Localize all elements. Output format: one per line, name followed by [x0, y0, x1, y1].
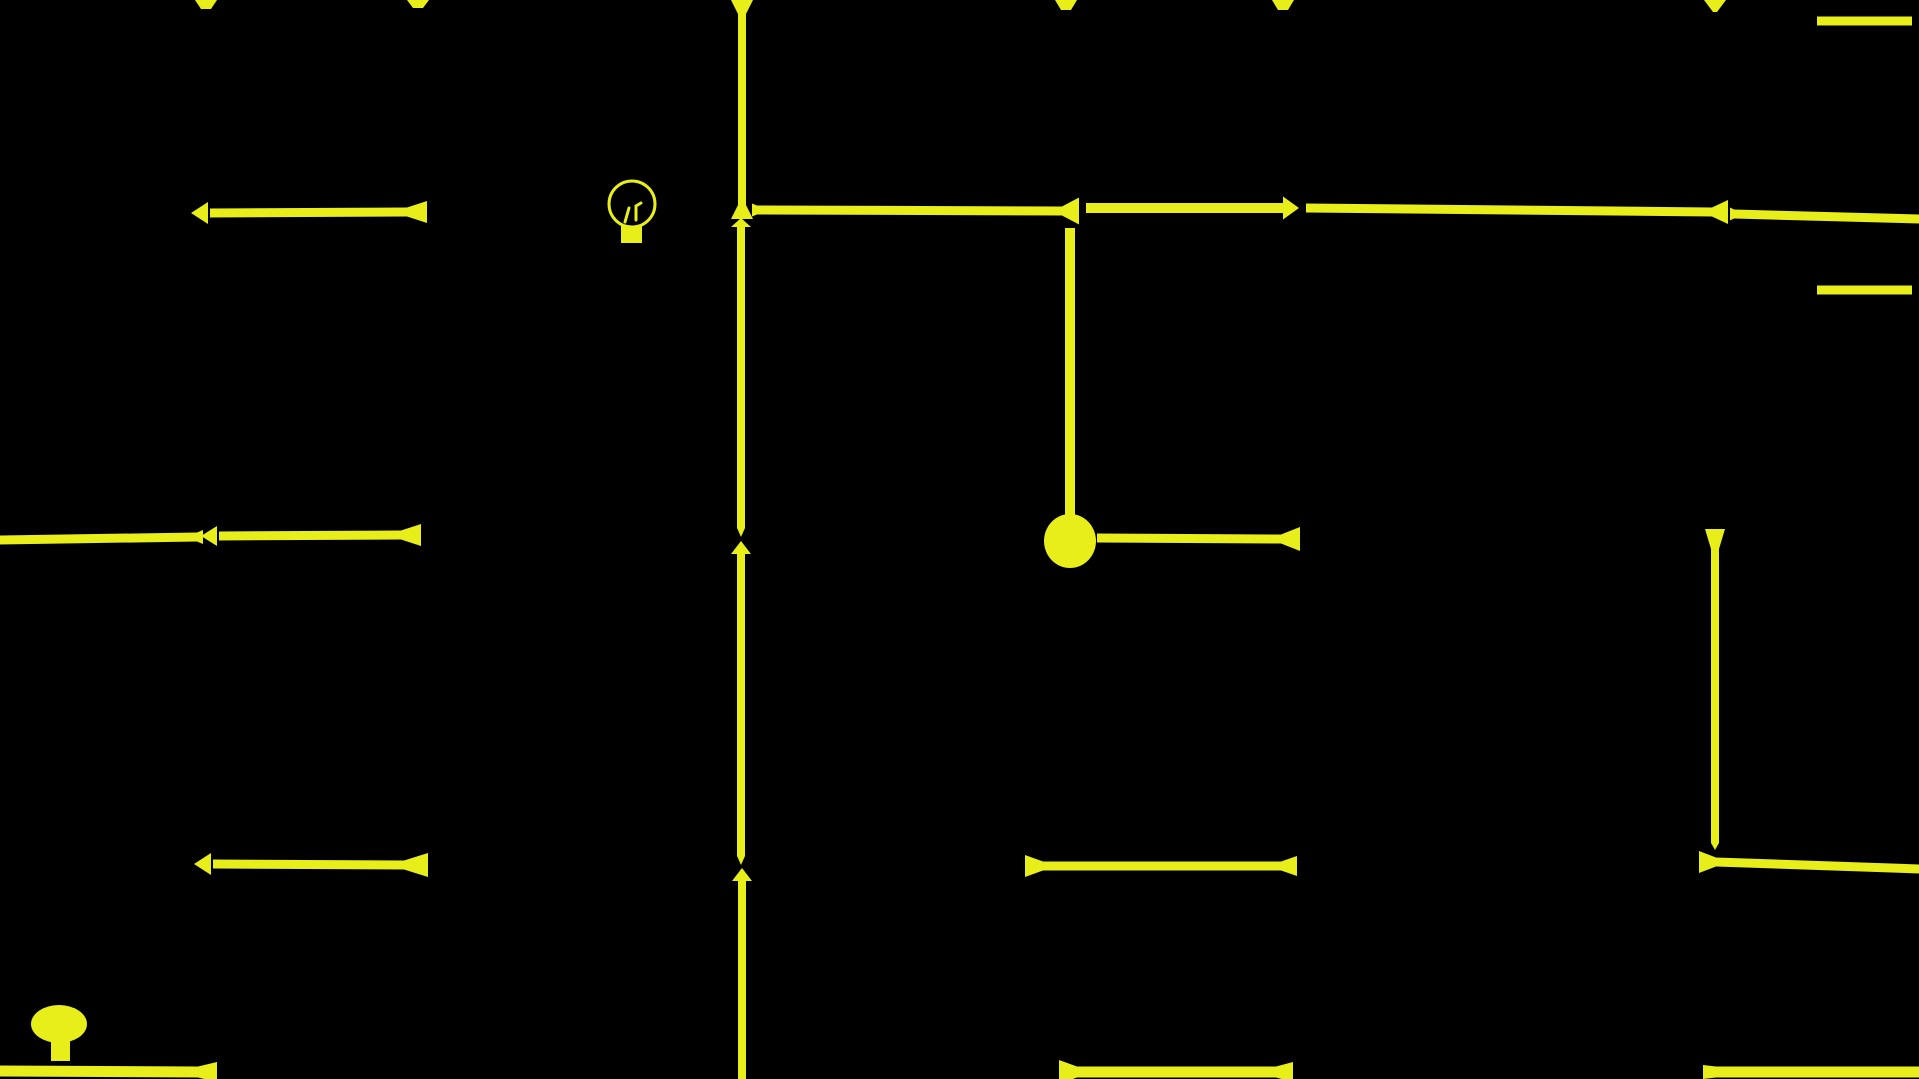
wall-bottom-edge3-flare: [1703, 1065, 1716, 1079]
icons-group: [31, 181, 1096, 1061]
wall-bottom-edge2-flare: [1276, 1062, 1293, 1079]
wall-main-seg1-flare: [752, 204, 757, 217]
wall-right-v-flare: [1705, 529, 1725, 549]
wall-bottom-edge2: [1077, 1067, 1276, 1078]
wall-node-arm-flare: [1281, 527, 1300, 551]
wall-main-seg4-flare: [1730, 208, 1734, 221]
top-stub-4: [1272, 0, 1294, 10]
wall-left-row3-arrow: [194, 853, 211, 875]
wall-botright-row: [1716, 858, 1919, 874]
lightbulb-outline-icon: [609, 181, 655, 243]
wall-center-v3: [737, 554, 745, 856]
wall-topright-bar: [1817, 17, 1912, 26]
top-stub-1: [195, 0, 217, 9]
wall-node-drop: [1065, 228, 1075, 520]
wall-bottom-edge3: [1716, 1067, 1919, 1078]
wall-left-row1-arrow: [191, 202, 208, 224]
wall-center-v2: [737, 227, 745, 528]
lightbulb-outline-icon-filament-0: [625, 208, 629, 222]
wall-center-v4: [738, 881, 746, 1079]
top-stub-3: [1055, 0, 1077, 10]
wall-botmid-row: [1043, 862, 1281, 871]
wall-left-row2b: [219, 531, 401, 541]
wall-main-seg1-flare: [1062, 198, 1079, 225]
wall-left-row2b-arrow: [201, 526, 217, 546]
wall-center-v3-arrow: [731, 541, 751, 554]
top-stub-2: [407, 0, 429, 8]
node-dot: [1044, 514, 1096, 568]
wall-center-v3-taper: [737, 856, 745, 865]
wall-main-seg1: [757, 206, 1062, 216]
wall-left-row3: [213, 860, 404, 870]
wall-left-row1-flare: [407, 201, 427, 223]
wall-left-row2b-flare: [401, 524, 421, 546]
lightbulb-filled-icon: [31, 1005, 87, 1061]
wall-main-seg2-arrow: [1283, 197, 1299, 220]
wall-bottom-edge1: [0, 1066, 198, 1078]
lightbulb-filled-icon-glass: [31, 1005, 87, 1043]
wall-right-v: [1711, 549, 1719, 843]
wall-right-bar: [1817, 286, 1912, 295]
wall-botmid-row-flare: [1281, 856, 1297, 876]
lightbulb-outline-icon-base: [621, 226, 642, 243]
wall-node-arm: [1097, 534, 1281, 544]
walls-group: [0, 0, 1919, 1079]
wall-center-v2-arrow: [731, 218, 751, 227]
wall-center-v4-arrow: [732, 868, 752, 881]
lightbulb-filled-icon-stem: [51, 1040, 70, 1061]
game-screen: [0, 0, 1919, 1079]
game-canvas[interactable]: [0, 0, 1919, 1079]
wall-bottom-edge1-flare: [198, 1062, 217, 1079]
wall-main-seg3-flare: [1712, 200, 1728, 224]
wall-right-v-taper: [1711, 843, 1719, 850]
wall-botright-row-flare: [1699, 851, 1716, 873]
wall-botmid-row-flare: [1025, 855, 1043, 877]
wall-main-seg3: [1306, 204, 1712, 217]
wall-left-row3-flare: [404, 853, 428, 877]
wall-center-v1-flare: [731, 0, 753, 14]
wall-center-v2-taper: [737, 528, 745, 537]
top-stub-5: [1704, 0, 1726, 12]
wall-main-seg2: [1086, 203, 1283, 213]
lightbulb-outline-icon-filament-2: [636, 203, 641, 206]
wall-center-v1: [738, 14, 746, 205]
wall-center-v1-flare: [731, 205, 753, 219]
lightbulb-outline-icon-glass: [609, 181, 655, 227]
wall-left-row1: [210, 208, 407, 218]
wall-bottom-edge2-flare: [1059, 1060, 1077, 1079]
wall-left-row2a: [0, 533, 197, 545]
wall-main-seg4: [1734, 210, 1919, 224]
wall-left-row2a-flare: [197, 530, 203, 544]
